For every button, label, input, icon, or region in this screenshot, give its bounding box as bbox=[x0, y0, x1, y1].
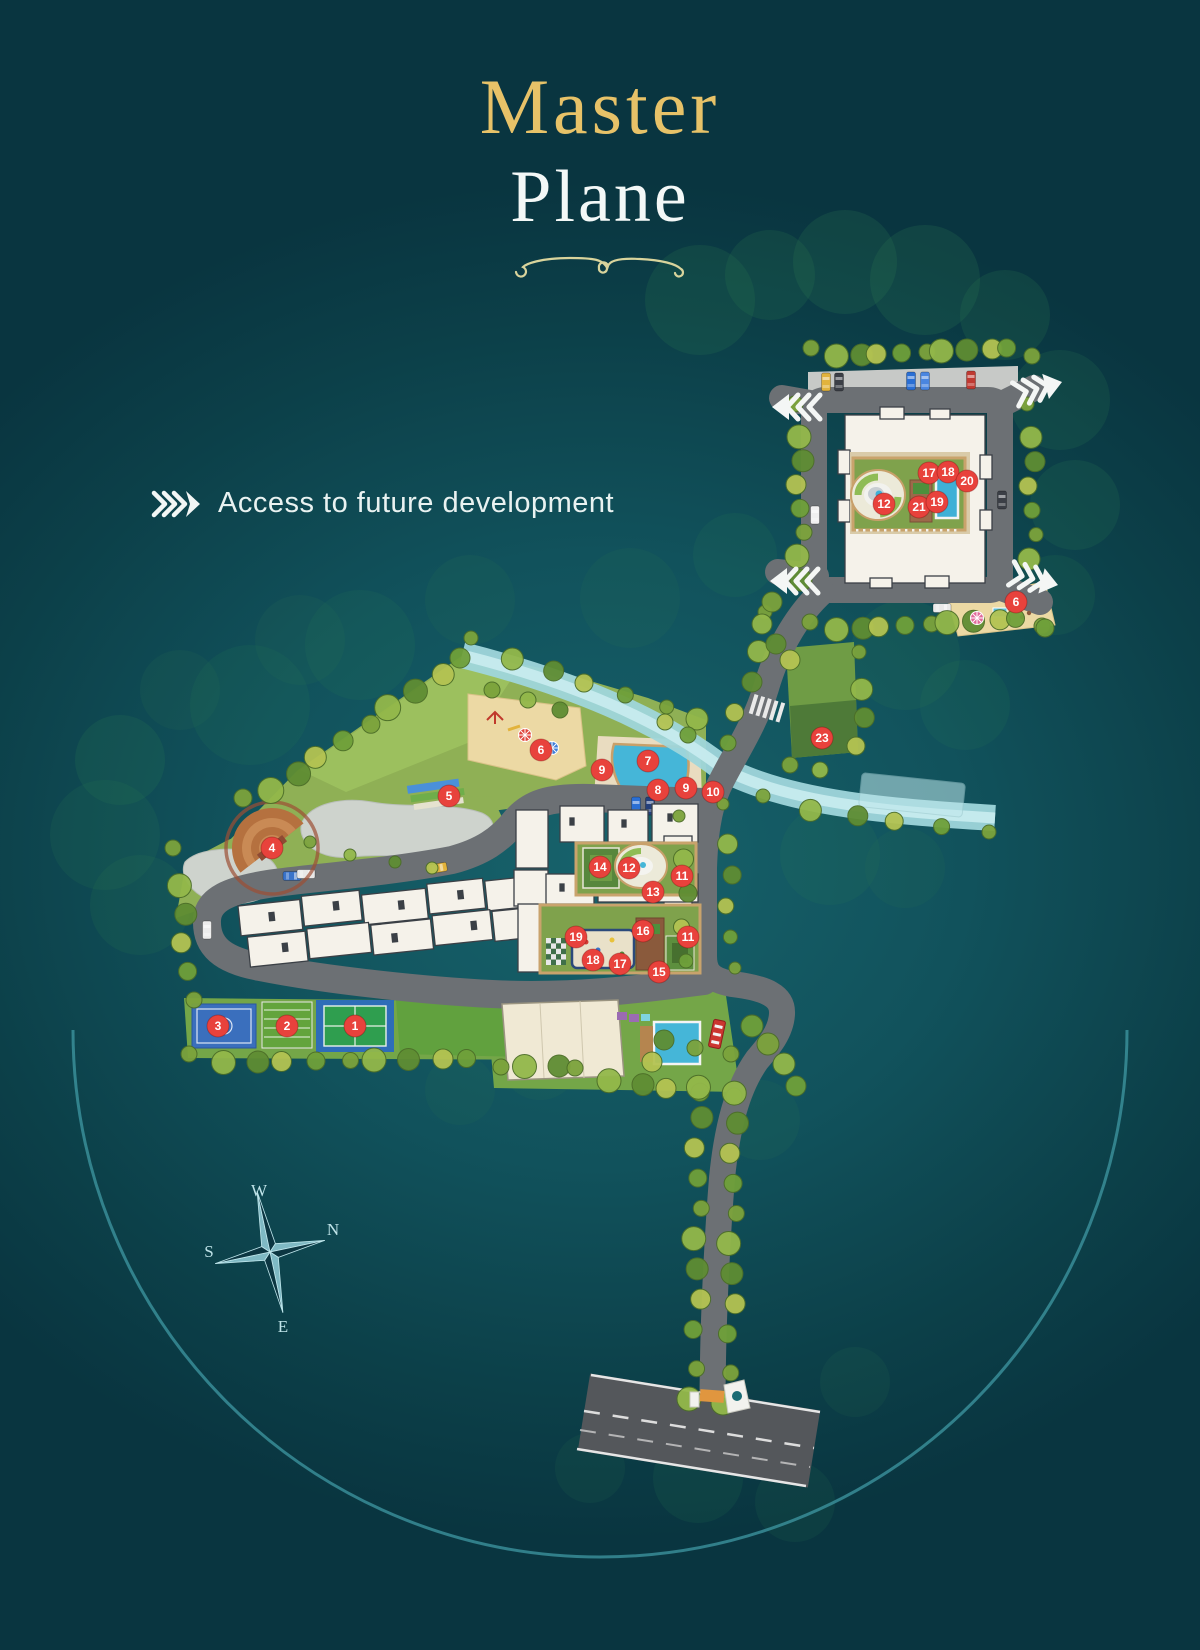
svg-text:12: 12 bbox=[877, 497, 891, 511]
map-marker-3: 3 bbox=[207, 1015, 229, 1037]
car bbox=[998, 491, 1007, 509]
map-marker-12: 12 bbox=[873, 493, 895, 515]
map-marker-18: 18 bbox=[582, 949, 604, 971]
svg-text:8: 8 bbox=[655, 783, 662, 797]
svg-text:9: 9 bbox=[683, 781, 690, 795]
svg-text:21: 21 bbox=[912, 500, 926, 514]
map-marker-17: 17 bbox=[609, 953, 631, 975]
compass-east: E bbox=[278, 1317, 288, 1336]
svg-text:3: 3 bbox=[215, 1019, 222, 1033]
svg-text:17: 17 bbox=[613, 957, 627, 971]
svg-text:17: 17 bbox=[922, 466, 936, 480]
title-flourish bbox=[0, 250, 1200, 284]
title-line-1: Master bbox=[0, 68, 1200, 146]
svg-text:18: 18 bbox=[586, 953, 600, 967]
map-marker-12: 12 bbox=[618, 857, 640, 879]
compass-west: W bbox=[251, 1181, 268, 1200]
map-marker-5: 5 bbox=[438, 785, 460, 807]
car bbox=[967, 371, 976, 389]
map-marker-9: 9 bbox=[591, 759, 613, 781]
svg-text:20: 20 bbox=[960, 474, 974, 488]
umbrella bbox=[519, 729, 532, 742]
map-marker-16: 16 bbox=[632, 920, 654, 942]
svg-text:7: 7 bbox=[645, 754, 652, 768]
map-marker-19: 19 bbox=[926, 491, 948, 513]
map-marker-6: 6 bbox=[530, 739, 552, 761]
map-marker-6: 6 bbox=[1005, 591, 1027, 613]
legend: Access to future development bbox=[148, 487, 614, 520]
umbrella bbox=[971, 612, 984, 625]
map-marker-19: 19 bbox=[565, 926, 587, 948]
legend-label: Access to future development bbox=[218, 487, 614, 520]
tower bbox=[516, 810, 548, 868]
map-marker-13: 13 bbox=[642, 881, 664, 903]
map-marker-20: 20 bbox=[956, 470, 978, 492]
compass-south: S bbox=[204, 1242, 213, 1261]
car bbox=[811, 506, 820, 524]
map-marker-10: 10 bbox=[702, 781, 724, 803]
triple-chevron-icon bbox=[148, 490, 200, 518]
car bbox=[835, 373, 844, 391]
map-marker-8: 8 bbox=[647, 779, 669, 801]
svg-text:5: 5 bbox=[446, 789, 453, 803]
svg-text:16: 16 bbox=[636, 924, 650, 938]
map-marker-1: 1 bbox=[344, 1015, 366, 1037]
map-marker-9: 9 bbox=[675, 777, 697, 799]
car bbox=[203, 921, 212, 939]
map-marker-7: 7 bbox=[637, 750, 659, 772]
svg-text:14: 14 bbox=[593, 860, 607, 874]
svg-text:19: 19 bbox=[930, 495, 944, 509]
map-marker-4: 4 bbox=[261, 837, 283, 859]
svg-text:13: 13 bbox=[646, 885, 660, 899]
map-marker-14: 14 bbox=[589, 856, 611, 878]
map-marker-11: 11 bbox=[677, 926, 699, 948]
svg-text:11: 11 bbox=[676, 869, 689, 883]
svg-text:6: 6 bbox=[1013, 595, 1020, 609]
car bbox=[907, 372, 916, 390]
car bbox=[921, 372, 930, 390]
map-marker-15: 15 bbox=[648, 961, 670, 983]
svg-text:18: 18 bbox=[941, 465, 955, 479]
svg-text:23: 23 bbox=[815, 731, 829, 745]
svg-text:10: 10 bbox=[706, 785, 720, 799]
svg-text:11: 11 bbox=[682, 930, 695, 944]
checker-plaza bbox=[546, 938, 566, 965]
svg-text:6: 6 bbox=[538, 743, 545, 757]
walkway-dots bbox=[856, 529, 956, 531]
svg-text:2: 2 bbox=[284, 1019, 291, 1033]
svg-text:9: 9 bbox=[599, 763, 606, 777]
masterplan-page: W N S E 17182012211962367989105414121113… bbox=[0, 0, 1200, 1650]
svg-text:4: 4 bbox=[269, 841, 276, 855]
map-marker-23: 23 bbox=[811, 727, 833, 749]
svg-text:19: 19 bbox=[569, 930, 583, 944]
page-title: Master Plane bbox=[0, 68, 1200, 284]
svg-text:15: 15 bbox=[652, 965, 666, 979]
svg-text:12: 12 bbox=[622, 861, 636, 875]
map-marker-11: 11 bbox=[671, 865, 693, 887]
compass-north: N bbox=[327, 1220, 339, 1239]
map-marker-2: 2 bbox=[276, 1015, 298, 1037]
car bbox=[822, 373, 831, 391]
svg-text:1: 1 bbox=[352, 1019, 359, 1033]
title-line-2: Plane bbox=[0, 160, 1200, 234]
compass: W N S E bbox=[202, 1180, 339, 1336]
